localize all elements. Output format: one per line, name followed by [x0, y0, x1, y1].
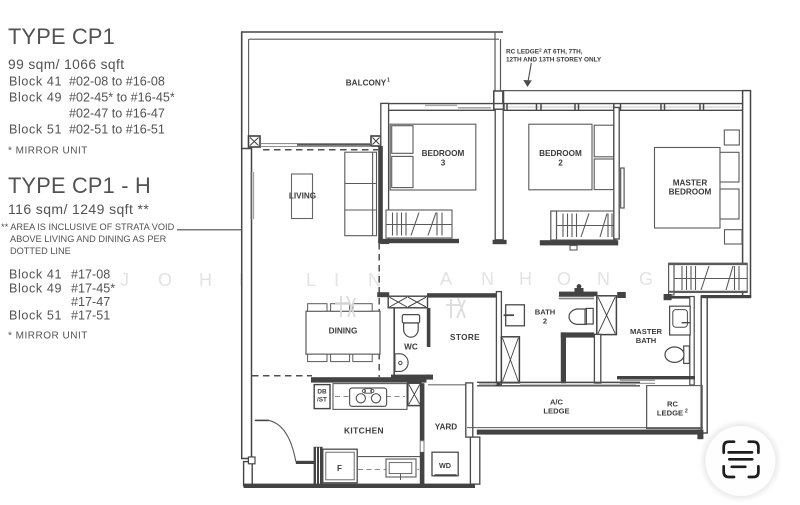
- svg-text:116 sqm/ 1249 sqft **: 116 sqm/ 1249 sqft **: [8, 201, 149, 217]
- svg-text:#02-51 to #16-51: #02-51 to #16-51: [69, 123, 165, 137]
- svg-text:* MIRROR UNIT: * MIRROR UNIT: [8, 146, 88, 157]
- svg-text:#17-08: #17-08: [71, 268, 110, 282]
- svg-text:BEDROOM: BEDROOM: [422, 149, 465, 158]
- svg-text:2: 2: [685, 409, 688, 415]
- svg-text:Block 41: Block 41: [9, 268, 62, 282]
- svg-text:N: N: [481, 269, 494, 289]
- svg-text:3: 3: [441, 159, 446, 168]
- svg-text:A/C: A/C: [550, 398, 564, 407]
- svg-text:YARD: YARD: [435, 423, 458, 432]
- svg-text:BALCONY: BALCONY: [346, 79, 387, 88]
- svg-text:/ST: /ST: [317, 397, 327, 404]
- svg-text:#17-45*: #17-45*: [71, 282, 115, 296]
- svg-text:H: H: [519, 269, 532, 289]
- svg-text:TYPE CP1: TYPE CP1: [8, 24, 115, 49]
- svg-text:WC: WC: [404, 343, 418, 352]
- svg-text:I: I: [334, 270, 339, 290]
- svg-text:1: 1: [387, 78, 390, 84]
- svg-text:WD: WD: [439, 461, 451, 470]
- svg-text:G: G: [639, 269, 653, 289]
- svg-text:* MIRROR UNIT: * MIRROR UNIT: [8, 331, 88, 342]
- svg-text:Block 49: Block 49: [9, 282, 62, 296]
- svg-text:99 sqm/ 1066 sqft: 99 sqm/ 1066 sqft: [8, 57, 124, 72]
- svg-text:#02-47 to #16-47: #02-47 to #16-47: [69, 107, 165, 121]
- svg-text:12TH AND 13TH STOREY ONLY: 12TH AND 13TH STOREY ONLY: [506, 57, 602, 64]
- svg-text:#17-51: #17-51: [71, 309, 110, 323]
- svg-text:L: L: [306, 270, 316, 290]
- svg-text:** AREA IS INCLUSIVE OF STRATA: ** AREA IS INCLUSIVE OF STRATA VOID: [1, 222, 175, 232]
- svg-text:MASTER: MASTER: [673, 179, 708, 188]
- svg-text:LIVING: LIVING: [289, 192, 316, 201]
- svg-text:H: H: [199, 270, 212, 290]
- svg-text:O: O: [158, 270, 172, 290]
- svg-text:#17-47: #17-47: [71, 295, 110, 309]
- svg-text:MASTER: MASTER: [630, 327, 663, 336]
- svg-text:BEDROOM: BEDROOM: [539, 149, 582, 158]
- svg-text:ABOVE LIVING AND DINING AS PER: ABOVE LIVING AND DINING AS PER: [10, 234, 167, 244]
- svg-text:A: A: [440, 269, 452, 289]
- svg-text:KITCHEN: KITCHEN: [344, 426, 384, 436]
- svg-text:J: J: [120, 270, 129, 290]
- svg-text:DB: DB: [317, 389, 327, 396]
- svg-text:RC: RC: [667, 400, 678, 409]
- svg-text:#02-08 to #16-08: #02-08 to #16-08: [69, 75, 165, 89]
- svg-text:Block 51: Block 51: [9, 123, 62, 137]
- svg-text:STORE: STORE: [450, 333, 480, 342]
- svg-text:Block 51: Block 51: [9, 309, 62, 323]
- svg-text:LEDGE: LEDGE: [543, 407, 569, 416]
- svg-text:2: 2: [558, 159, 563, 168]
- svg-text:Block 49: Block 49: [9, 91, 62, 105]
- svg-text:O: O: [557, 269, 571, 289]
- svg-text:Block 41: Block 41: [9, 75, 62, 89]
- svg-text:DINING: DINING: [329, 327, 358, 336]
- svg-text:BEDROOM: BEDROOM: [669, 188, 712, 197]
- svg-text:#02-45* to #16-45*: #02-45* to #16-45*: [69, 91, 175, 105]
- svg-text:BATH: BATH: [535, 308, 556, 317]
- svg-text:TYPE CP1 - H: TYPE CP1 - H: [8, 173, 151, 198]
- svg-text:RC LEDGE2 AT 6TH, 7TH,: RC LEDGE2 AT 6TH, 7TH,: [506, 47, 583, 55]
- svg-text:LEDGE: LEDGE: [657, 409, 683, 418]
- svg-text:N: N: [597, 269, 610, 289]
- svg-text:2: 2: [543, 317, 547, 326]
- svg-text:BATH: BATH: [636, 336, 657, 345]
- svg-text:F: F: [337, 464, 342, 473]
- svg-text:DOTTED LINE: DOTTED LINE: [10, 246, 71, 256]
